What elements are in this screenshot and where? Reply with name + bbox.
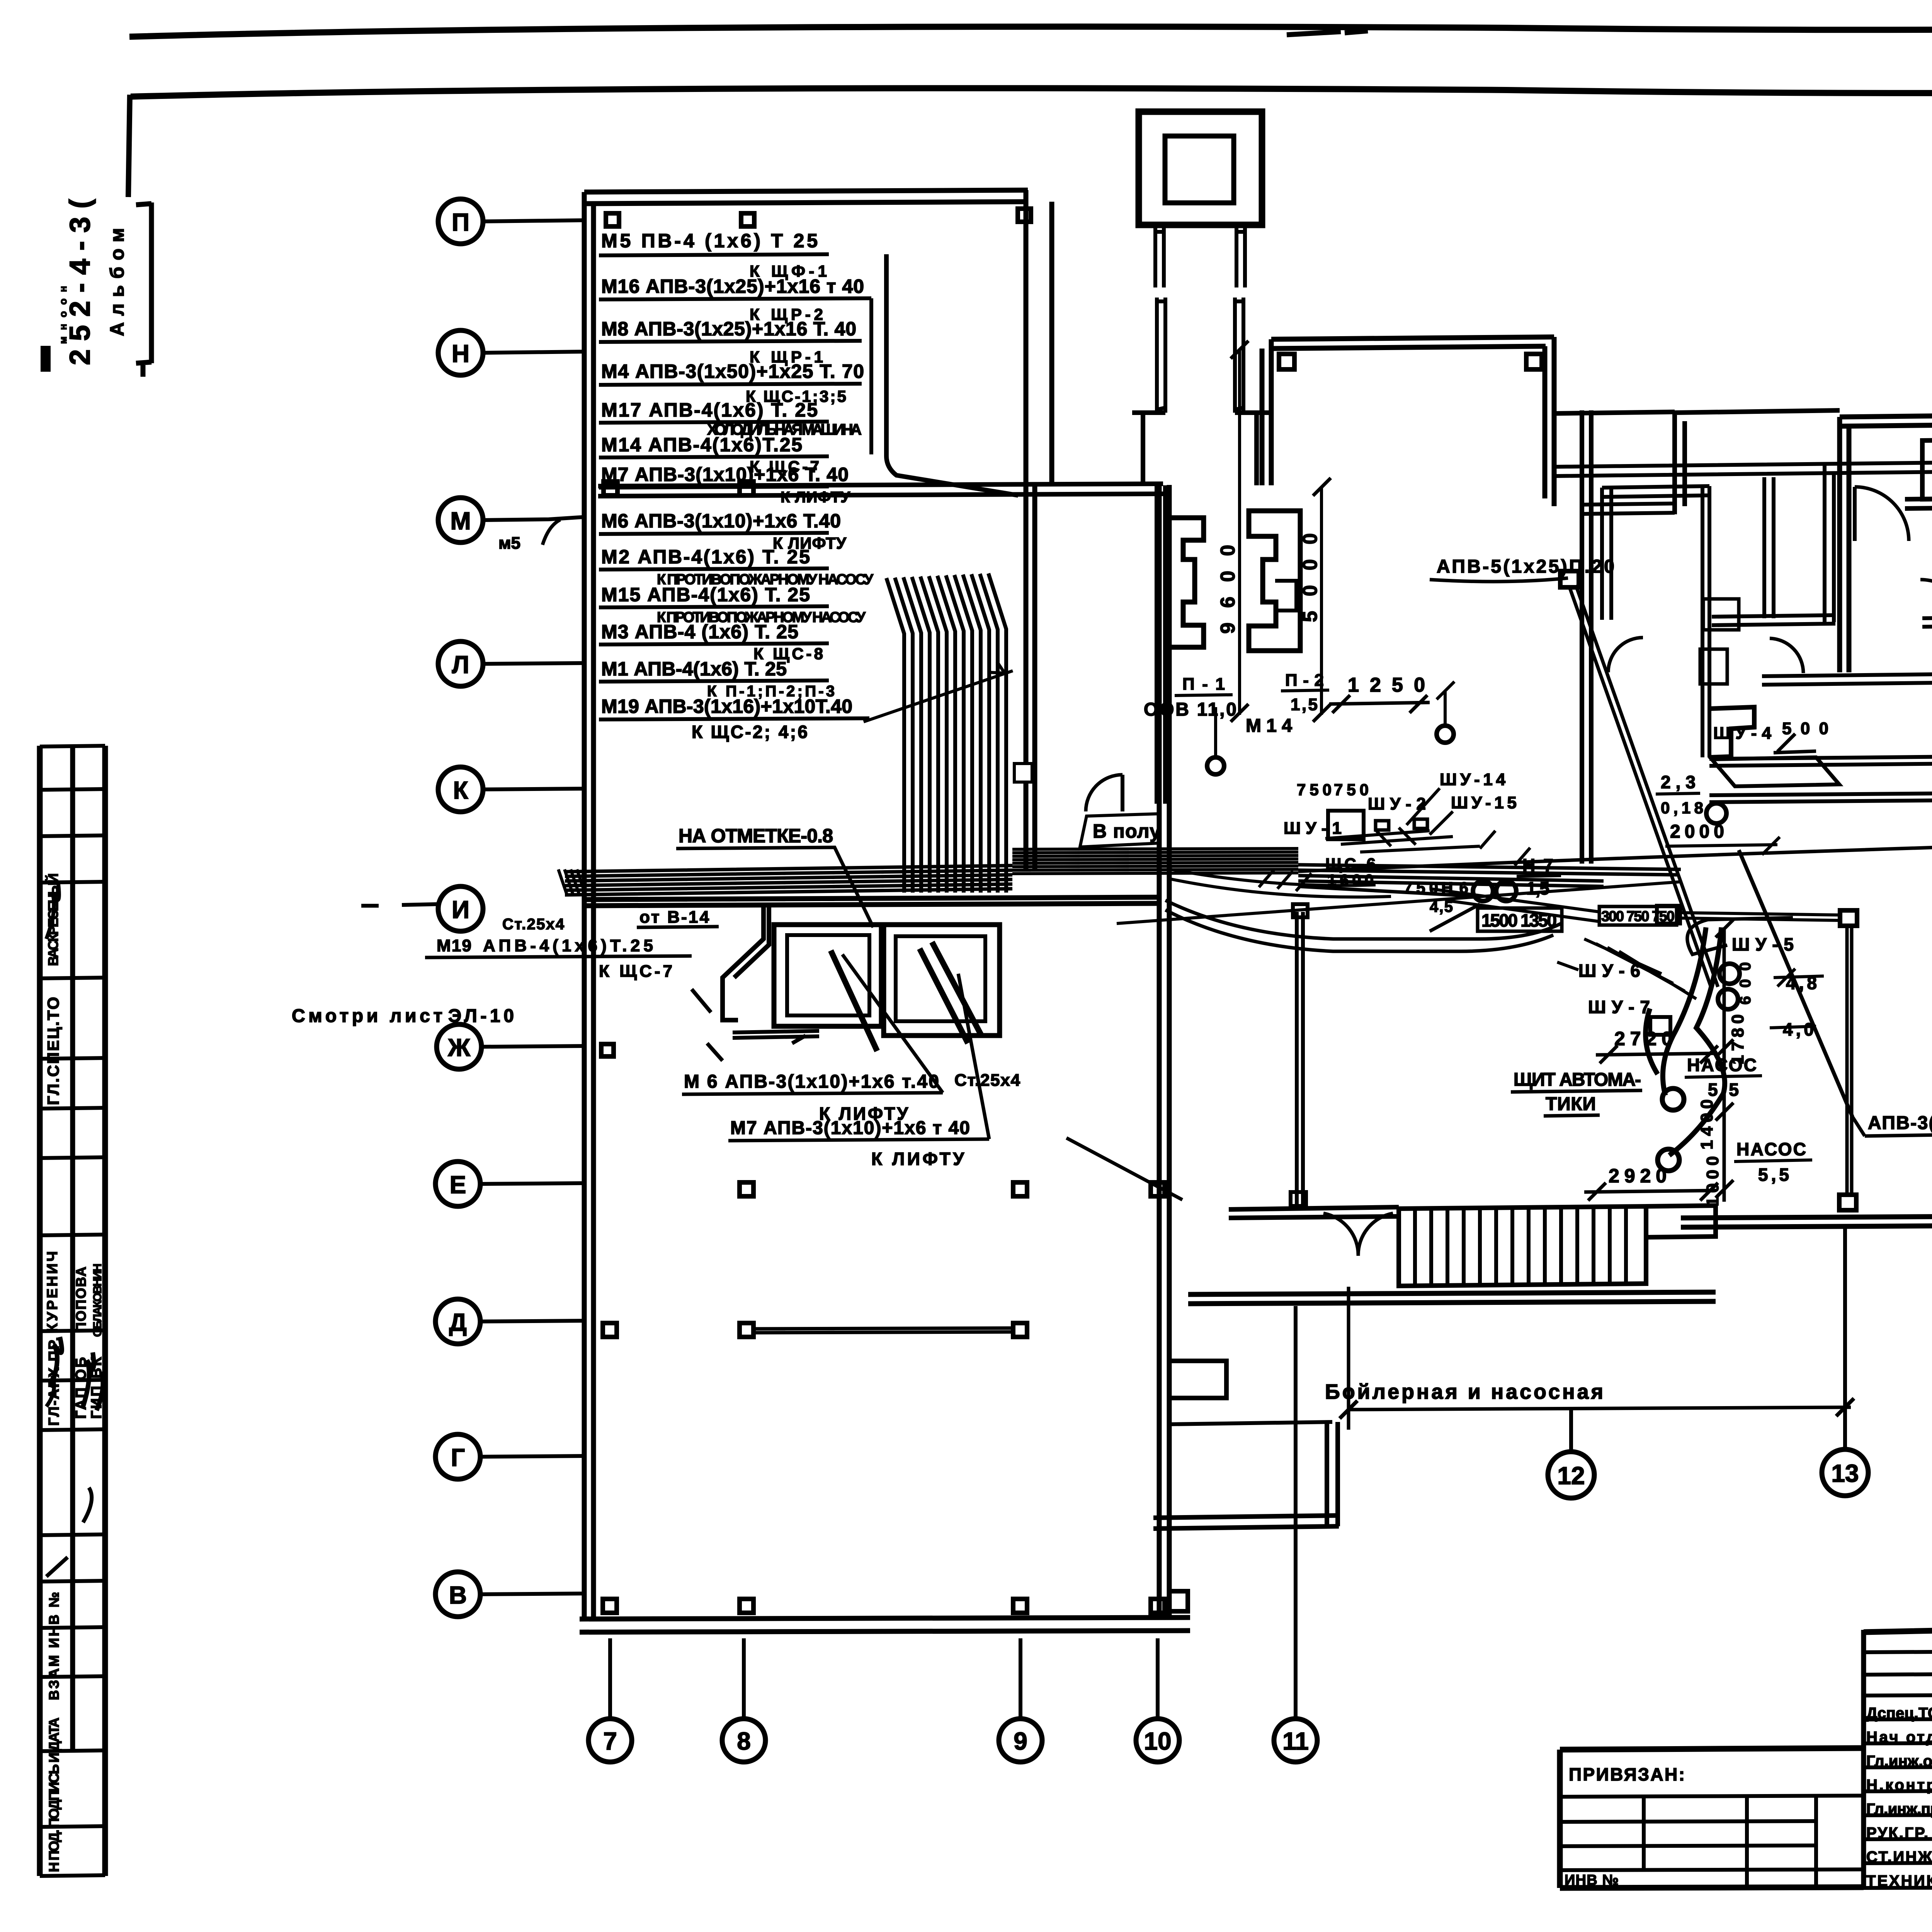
svg-text:М19: М19 xyxy=(437,936,471,955)
svg-text:СТ.ИНЖ: СТ.ИНЖ xyxy=(1866,1849,1932,1866)
svg-text:НА ОТМЕТКЕ-0.8: НА ОТМЕТКЕ-0.8 xyxy=(679,825,833,847)
svg-text:К ЛИФТУ: К ЛИФТУ xyxy=(781,489,850,506)
svg-text:м5: м5 xyxy=(498,534,520,553)
svg-text:5,5: 5,5 xyxy=(1758,1165,1789,1185)
svg-text:М6 АПВ-3(1х10)+1х6 Т.40: М6 АПВ-3(1х10)+1х6 Т.40 xyxy=(601,510,841,532)
svg-text:ОБЛАКОВНИН: ОБЛАКОВНИН xyxy=(91,1264,104,1337)
svg-text:М15 АПВ-4(1х6) Т. 25: М15 АПВ-4(1х6) Т. 25 xyxy=(601,584,810,605)
svg-text:М14 АПВ-4(1х6)Т.25: М14 АПВ-4(1х6)Т.25 xyxy=(601,434,802,456)
svg-text:Н: Н xyxy=(452,340,469,367)
svg-text:АПВ-3(1х4) п.20: АПВ-3(1х4) п.20 xyxy=(1868,1113,1932,1133)
svg-text:ШУ-7: ШУ-7 xyxy=(1588,997,1650,1017)
svg-text:11: 11 xyxy=(1282,1727,1309,1755)
svg-text:М2 АПВ-4(1х6) Т. 25: М2 АПВ-4(1х6) Т. 25 xyxy=(601,546,810,568)
svg-text:Дспец.ТО: Дспец.ТО xyxy=(1866,1705,1932,1722)
svg-text:2,3: 2,3 xyxy=(1661,772,1696,792)
svg-text:П-2: П-2 xyxy=(1285,671,1324,690)
svg-text:М17 АПВ-4(1х6) Т. 25: М17 АПВ-4(1х6) Т. 25 xyxy=(601,399,818,421)
svg-text:М16 АПВ-3(1х25)+1х16 т 40: М16 АПВ-3(1х25)+1х16 т 40 xyxy=(601,276,864,297)
svg-text:В: В xyxy=(449,1581,467,1609)
svg-text:ШУ-1: ШУ-1 xyxy=(1284,819,1342,838)
svg-text:ПРИВЯЗАН:: ПРИВЯЗАН: xyxy=(1569,1764,1685,1784)
svg-text:Н ПОД. ПОДПИСЬ И ДАТА: Н ПОД. ПОДПИСЬ И ДАТА xyxy=(46,1718,62,1872)
svg-text:НАСОС: НАСОС xyxy=(1736,1139,1806,1159)
svg-text:Гл.инж.от: Гл.инж.от xyxy=(1866,1753,1932,1770)
svg-text:НАСОС: НАСОС xyxy=(1687,1055,1757,1075)
svg-text:Е: Е xyxy=(450,1171,466,1199)
svg-text:ТИКИ: ТИКИ xyxy=(1546,1094,1596,1114)
svg-text:М19 АПВ-3(1х16)+1х10Т.40: М19 АПВ-3(1х16)+1х10Т.40 xyxy=(601,696,852,717)
svg-text:Гл.инж.пр: Гл.инж.пр xyxy=(1866,1801,1932,1818)
svg-text:М14: М14 xyxy=(1246,716,1292,736)
svg-text:М5 ПВ-4 (1х6) Т 25: М5 ПВ-4 (1х6) Т 25 xyxy=(601,230,818,252)
svg-text:12: 12 xyxy=(1557,1462,1585,1490)
svg-text:10: 10 xyxy=(1144,1727,1171,1755)
svg-text:1,5: 1,5 xyxy=(1291,695,1318,714)
svg-text:1500 1350: 1500 1350 xyxy=(1481,910,1557,930)
svg-text:7: 7 xyxy=(603,1727,617,1755)
svg-text:М1 АПВ-4(1х6) Т. 25: М1 АПВ-4(1х6) Т. 25 xyxy=(601,658,787,680)
svg-text:ШУ-6: ШУ-6 xyxy=(1578,961,1640,981)
svg-text:Смотри лист: Смотри лист xyxy=(292,1006,442,1026)
svg-text:ЩИТ АВТОМА-: ЩИТ АВТОМА- xyxy=(1514,1070,1641,1090)
svg-text:ШУ-2: ШУ-2 xyxy=(1368,794,1426,813)
svg-text:500: 500 xyxy=(1782,719,1828,738)
svg-text:П: П xyxy=(452,208,469,236)
svg-text:0,18: 0,18 xyxy=(1661,799,1703,817)
svg-text:М3 АПВ-4 (1х6) Т. 25: М3 АПВ-4 (1х6) Т. 25 xyxy=(601,621,798,643)
svg-text:В полу: В полу xyxy=(1093,820,1160,842)
svg-text:ШУ-4: ШУ-4 xyxy=(1713,724,1772,743)
svg-text:Д: Д xyxy=(449,1308,467,1336)
svg-text:Ж: Ж xyxy=(447,1034,471,1061)
svg-text:4,5: 4,5 xyxy=(1430,898,1453,915)
svg-text:П-1: П-1 xyxy=(1182,675,1225,694)
svg-text:РУК.ГР.: РУК.ГР. xyxy=(1866,1825,1928,1842)
svg-text:М7 АПВ-3(1х10)+1х6 Т. 40: М7 АПВ-3(1х10)+1х6 Т. 40 xyxy=(601,464,849,485)
svg-text:ООВ 11,0: ООВ 11,0 xyxy=(1144,699,1236,720)
svg-text:ИНВ №: ИНВ № xyxy=(1565,1872,1619,1888)
svg-text:К: К xyxy=(453,776,468,804)
svg-text:М4 АПВ-3(1х50)+1х25 Т. 70: М4 АПВ-3(1х50)+1х25 Т. 70 xyxy=(601,361,864,382)
svg-text:750: 750 xyxy=(1297,781,1332,799)
svg-text:К ЩС-2; 4;6: К ЩС-2; 4;6 xyxy=(692,722,808,742)
svg-text:5,5: 5,5 xyxy=(1708,1080,1739,1100)
svg-text:13: 13 xyxy=(1831,1459,1859,1487)
svg-text:Ст.25х4: Ст.25х4 xyxy=(954,1071,1020,1090)
svg-text:АПВ-5(1х25)П.20: АПВ-5(1х25)П.20 xyxy=(1437,556,1614,577)
svg-text:ЭЛ-10: ЭЛ-10 xyxy=(448,1006,514,1026)
svg-text:4,0: 4,0 xyxy=(1783,1019,1814,1039)
svg-text:600: 600 xyxy=(1737,962,1754,1005)
svg-text:М7 АПВ-3(1х10)+1х6 т 40: М7 АПВ-3(1х10)+1х6 т 40 xyxy=(730,1118,970,1138)
svg-text:ШУ-5: ШУ-5 xyxy=(1732,934,1794,954)
svg-text:9: 9 xyxy=(1014,1727,1027,1755)
svg-text:Н.контр: Н.контр xyxy=(1866,1777,1932,1794)
svg-text:И: И xyxy=(452,896,469,923)
svg-text:М 6 АПВ-3(1х10)+1х6 т.40: М 6 АПВ-3(1х10)+1х6 т.40 xyxy=(684,1071,939,1092)
svg-text:8: 8 xyxy=(737,1727,751,1755)
svg-text:ГАП ОБ: ГАП ОБ xyxy=(73,1357,89,1419)
svg-text:М: М xyxy=(450,507,471,535)
svg-text:ГЛ.СПЕЦ.ТО: ГЛ.СПЕЦ.ТО xyxy=(44,997,62,1105)
svg-text:Л: Л xyxy=(452,651,469,679)
svg-text:М8 АПВ-3(1х25)+1х16 Т. 40: М8 АПВ-3(1х25)+1х16 Т. 40 xyxy=(601,318,856,340)
svg-text:Г: Г xyxy=(451,1444,465,1471)
svg-text:750: 750 xyxy=(1334,781,1369,799)
